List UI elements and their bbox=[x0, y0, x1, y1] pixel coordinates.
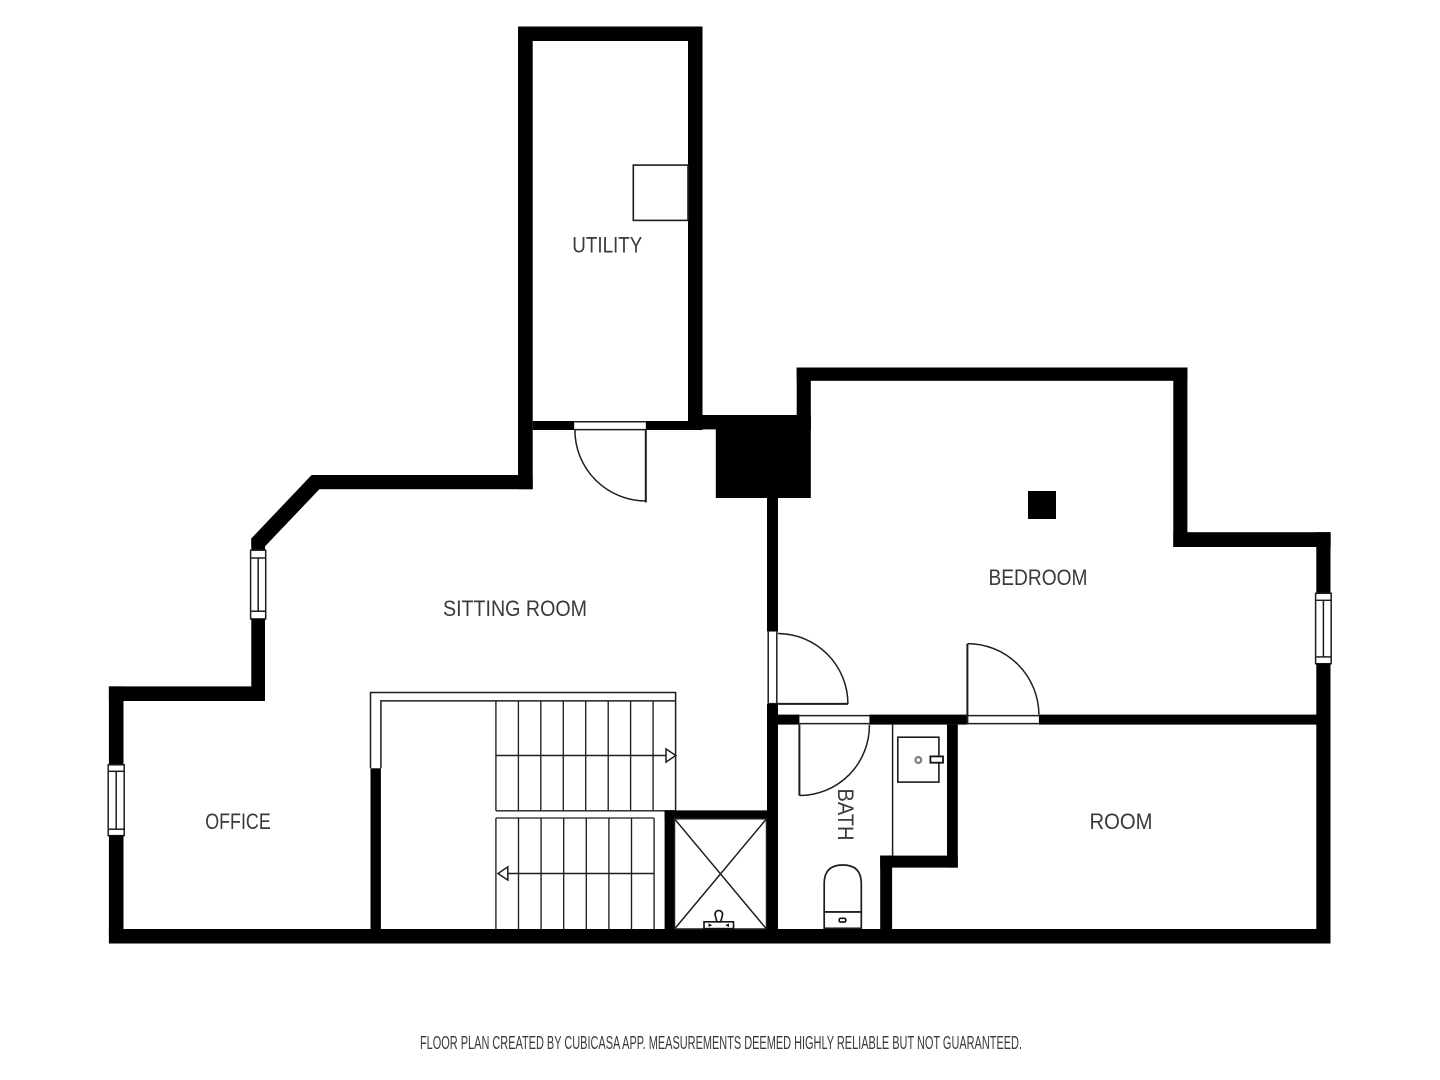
svg-text:FLOOR PLAN CREATED BY CUBICASA: FLOOR PLAN CREATED BY CUBICASA APP. MEAS… bbox=[420, 1032, 1022, 1053]
svg-text:ROOM: ROOM bbox=[1090, 809, 1153, 834]
svg-text:OFFICE: OFFICE bbox=[205, 809, 271, 834]
svg-text:BEDROOM: BEDROOM bbox=[989, 565, 1088, 590]
svg-text:BATH: BATH bbox=[833, 789, 858, 841]
svg-text:UTILITY: UTILITY bbox=[572, 232, 642, 257]
svg-text:SITTING ROOM: SITTING ROOM bbox=[443, 596, 587, 621]
